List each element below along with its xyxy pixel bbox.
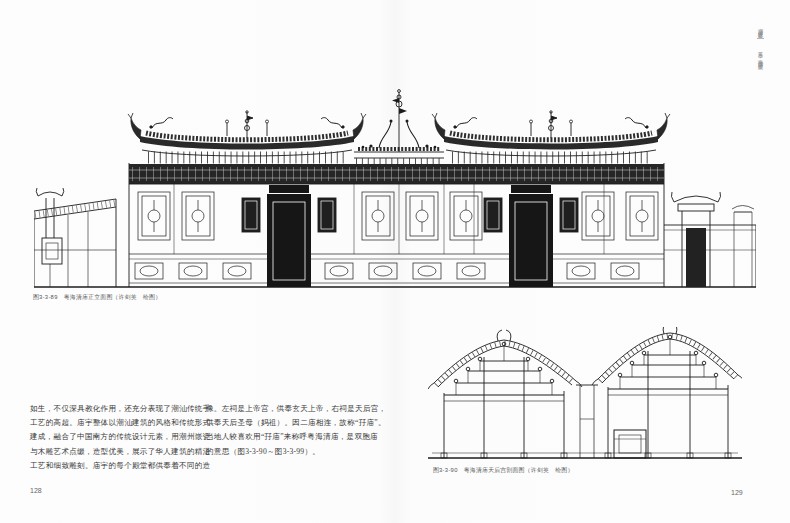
- page-number-right: 129: [731, 489, 743, 496]
- book-spread: 图3-3-89 粤海清庙正立面图（许剑英 绘图） 如生，不仅深具教化作用，还充分…: [0, 0, 790, 523]
- temple-elevation-drawing: [34, 78, 756, 290]
- body-text-line: 当地人较喜欢用“孖庙”来称呼粤海清庙，是双胞庙: [206, 430, 380, 444]
- page-number-left: 128: [30, 487, 42, 494]
- body-text-line: 像。左祠是上帝宫，供奉玄天上帝，右祠是天后宫，: [206, 402, 380, 416]
- running-head-chapter: 第三章: [758, 47, 764, 50]
- section-figure: [428, 327, 742, 465]
- body-text-line: 如生，不仅深具教化作用，还充分表现了潮汕传统手: [30, 402, 204, 416]
- body-text-line: 工艺的高超。庙宇整体以潮汕建筑的风格和传统形式: [30, 416, 204, 430]
- body-text-line: 建成，融合了中国南方的传统设计元素，用潮州嵌瓷: [30, 430, 204, 444]
- body-text-line: 工艺和细致雕刻。庙宇的每个殿堂都供奉着不同的造: [30, 459, 204, 473]
- body-text-column-2: 像。左祠是上帝宫，供奉玄天上帝，右祠是天后宫， 供奉天后圣母（妈祖）。因二庙相连…: [206, 402, 380, 459]
- running-head: 潮汕传统建筑 第三章 海外潮汕建筑: [757, 24, 764, 61]
- body-text-line: 与木雕艺术点缀，造型优美，展示了华人建筑的精湛: [30, 445, 204, 459]
- elevation-figure: [34, 78, 756, 290]
- temple-section-drawing: [428, 327, 742, 465]
- running-head-divider: [757, 38, 764, 39]
- figure-caption-elevation: 图3-3-89 粤海清庙正立面图（许剑英 绘图）: [33, 293, 161, 302]
- body-text-column-1: 如生，不仅深具教化作用，还充分表现了潮汕传统手 工艺的高超。庙宇整体以潮汕建筑的…: [30, 402, 204, 473]
- body-text-line: 供奉天后圣母（妈祖）。因二庙相连，故称“孖庙”。: [206, 416, 380, 430]
- figure-caption-section: 图3-3-90 粤海清庙天后宫剖面图（许剑英 绘图）: [433, 466, 574, 475]
- running-head-section: 海外潮汕建筑: [758, 55, 764, 61]
- running-head-book-title: 潮汕传统建筑: [758, 24, 764, 30]
- body-text-line: 的意思（图3-3-90～图3-3-99）。: [206, 445, 380, 459]
